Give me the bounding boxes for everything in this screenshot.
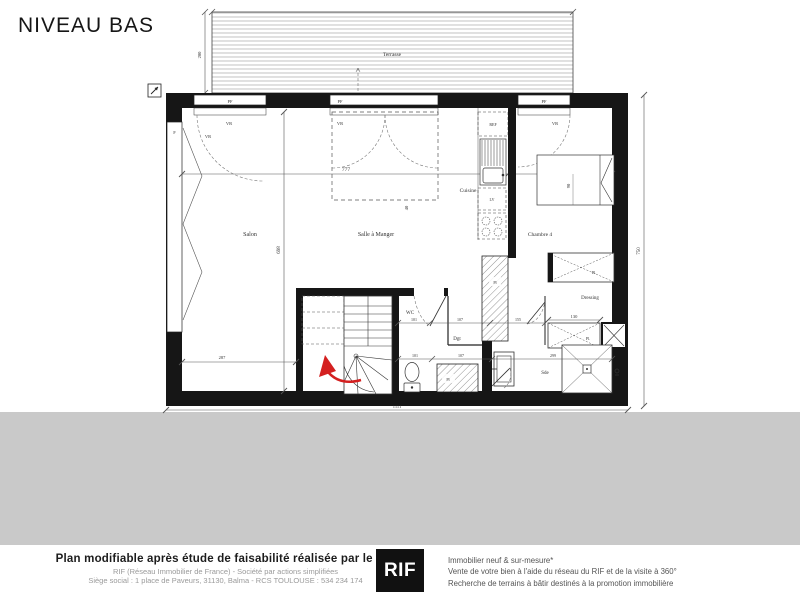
kitchen-fixtures: REF LV bbox=[478, 108, 508, 240]
bed: 90 bbox=[537, 155, 614, 205]
dim-sde-width: 299 bbox=[550, 353, 556, 358]
dim-chain-mid-upper bbox=[395, 320, 548, 326]
dim-tremie: 40 bbox=[404, 205, 409, 210]
footer-left-block: Plan modifiable après étude de faisabili… bbox=[38, 553, 413, 586]
footer-legal-line1: RIF (Réseau Immobilier de France) - Soci… bbox=[38, 567, 413, 576]
ceiling-opening-outline: 40 bbox=[332, 112, 438, 210]
rif-logo: RIF bbox=[376, 549, 424, 592]
window-pf3-vr-label: VR bbox=[552, 121, 558, 126]
footer-legal-line2: Siège social : 1 place de Paveurs, 31130… bbox=[38, 576, 413, 585]
dim-salon-bottom: 287 bbox=[219, 355, 227, 360]
dim-wc-bottom: 101 bbox=[412, 353, 418, 358]
staircase bbox=[302, 296, 392, 394]
dim-terrace-height: 200 bbox=[197, 51, 202, 59]
dim-hall-top: 155 bbox=[515, 317, 521, 322]
room-dgt-label: Dgt bbox=[453, 337, 461, 342]
shower bbox=[562, 345, 619, 393]
dim-placard: 130 bbox=[571, 314, 579, 319]
dim-right-height: 750 bbox=[637, 247, 642, 255]
placard2-label: Pl. bbox=[586, 336, 590, 341]
window-f-vr-label: VR bbox=[205, 134, 211, 139]
room-dressing-label: Dressing bbox=[581, 296, 599, 301]
footer-service-2: Vente de votre bien à l'aide du réseau d… bbox=[448, 566, 778, 577]
placard1-label: Pl. bbox=[592, 270, 596, 275]
footer-legal: RIF (Réseau Immobilier de France) - Soci… bbox=[38, 567, 413, 586]
rif-logo-text: RIF bbox=[384, 560, 416, 582]
dim-salon-bottom-line bbox=[179, 359, 299, 365]
room-cuisine-label: Cuisine bbox=[460, 188, 477, 194]
dim-dgt-top: 107 bbox=[457, 317, 463, 322]
closet-hatched-column: Pl bbox=[482, 256, 508, 341]
window-pf2-vr-label: VR bbox=[337, 121, 343, 126]
room-wc-label: WC bbox=[406, 311, 415, 316]
footer-services: Immobilier neuf & sur-mesure* Vente de v… bbox=[448, 555, 778, 589]
terrace-label: Terrasse bbox=[383, 52, 402, 58]
interior-doors bbox=[414, 296, 545, 388]
room-salle-a-manger-label: Salle à Manger bbox=[358, 232, 394, 238]
room-salon-label: Salon bbox=[243, 232, 257, 238]
dim-wc-top: 101 bbox=[411, 317, 417, 322]
dim-interior-height: 698 bbox=[277, 246, 282, 254]
window-f-left: F VR bbox=[167, 122, 211, 332]
toilet bbox=[404, 363, 420, 393]
closet-hatched-bottom: Pl bbox=[437, 364, 478, 392]
dishwasher-label: LV bbox=[490, 197, 495, 202]
window-pf2-label: PF bbox=[337, 99, 343, 104]
dim-total-width: 1111 bbox=[393, 404, 402, 409]
footer-disclaimer: Plan modifiable après étude de faisabili… bbox=[38, 553, 413, 565]
room-sde-label: Sde bbox=[541, 371, 549, 376]
dim-salon-width: 777 bbox=[342, 167, 351, 173]
dim-bed: 90 bbox=[566, 183, 571, 188]
dim-dgt-bottom: 107 bbox=[458, 353, 464, 358]
window-pf3-label: PF bbox=[541, 99, 547, 104]
terrace: Terrasse 200 bbox=[197, 9, 576, 96]
partition-kitchen-chambre bbox=[508, 108, 516, 258]
fridge-label: REF bbox=[489, 122, 497, 127]
window-pf1-vr-label: VR bbox=[226, 121, 232, 126]
footer: Plan modifiable après étude de faisabili… bbox=[0, 545, 800, 600]
footer-service-3: Recherche de terrains à bâtir destinés à… bbox=[448, 578, 778, 589]
window-pf1-label: PF bbox=[227, 99, 233, 104]
footer-service-1: Immobilier neuf & sur-mesure* bbox=[448, 555, 778, 566]
north-arrow-icon bbox=[148, 84, 161, 97]
washbasin bbox=[492, 352, 514, 386]
room-chambre4-label: Chambre 4 bbox=[528, 232, 553, 238]
floor-plan-drawing: Terrasse 200 PF VR PF VR PF VR bbox=[0, 0, 800, 545]
